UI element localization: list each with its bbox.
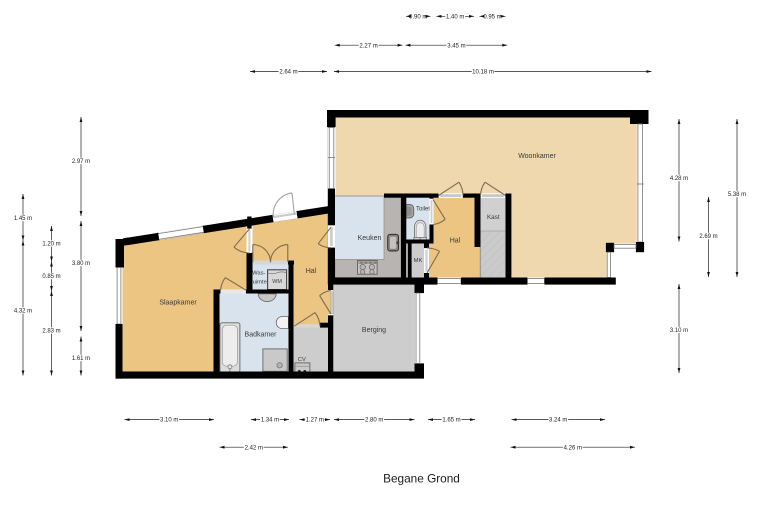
- svg-text:3.10 m: 3.10 m: [160, 418, 178, 424]
- svg-text:Berging: Berging: [362, 327, 386, 334]
- svg-text:Slaapkamer: Slaapkamer: [159, 300, 197, 307]
- svg-text:2.42 m: 2.42 m: [245, 445, 263, 451]
- svg-text:3.10 m: 3.10 m: [670, 328, 688, 334]
- svg-text:ruimte: ruimte: [251, 279, 267, 285]
- svg-text:CV: CV: [298, 357, 306, 363]
- svg-text:1.20 m: 1.20 m: [42, 242, 60, 248]
- svg-text:1.61 m: 1.61 m: [72, 356, 90, 362]
- svg-text:4.28 m: 4.28 m: [670, 176, 688, 182]
- svg-text:3.45 m: 3.45 m: [447, 43, 465, 49]
- svg-text:4.26 m: 4.26 m: [564, 445, 582, 451]
- svg-text:3.24 m: 3.24 m: [549, 418, 567, 424]
- svg-text:Begane Grond: Begane Grond: [383, 472, 460, 486]
- svg-text:2.64 m: 2.64 m: [279, 70, 297, 76]
- svg-text:2.97 m: 2.97 m: [72, 159, 90, 165]
- svg-text:MK: MK: [414, 258, 423, 264]
- svg-text:0.90 m: 0.90 m: [409, 14, 427, 20]
- svg-text:0.85 m: 0.85 m: [42, 274, 60, 280]
- svg-text:1.65 m: 1.65 m: [442, 418, 460, 424]
- svg-text:10.18 m: 10.18 m: [472, 70, 494, 76]
- svg-text:0.95 m: 0.95 m: [483, 14, 501, 20]
- svg-text:WM: WM: [272, 279, 282, 285]
- svg-text:2.80 m: 2.80 m: [365, 418, 383, 424]
- svg-text:Kast: Kast: [487, 214, 500, 221]
- svg-text:4.32 m: 4.32 m: [14, 309, 32, 315]
- svg-text:Badkamer: Badkamer: [245, 332, 278, 339]
- svg-text:1.45 m: 1.45 m: [14, 216, 32, 222]
- svg-text:2.83 m: 2.83 m: [42, 329, 60, 335]
- svg-text:1.27 m: 1.27 m: [306, 418, 324, 424]
- svg-text:1.34 m: 1.34 m: [261, 418, 279, 424]
- svg-text:Hal: Hal: [450, 238, 461, 245]
- svg-text:Keuken: Keuken: [358, 235, 382, 242]
- svg-text:2.69 m: 2.69 m: [699, 234, 717, 240]
- svg-text:Toilet: Toilet: [416, 206, 430, 212]
- svg-text:Hal: Hal: [306, 268, 317, 275]
- svg-text:Woonkamer: Woonkamer: [518, 153, 556, 160]
- svg-text:3.80 m: 3.80 m: [72, 261, 90, 267]
- svg-text:2.27 m: 2.27 m: [359, 43, 377, 49]
- svg-text:5.38 m: 5.38 m: [728, 192, 746, 198]
- svg-text:Was-: Was-: [252, 271, 265, 277]
- svg-text:1.40 m: 1.40 m: [446, 14, 464, 20]
